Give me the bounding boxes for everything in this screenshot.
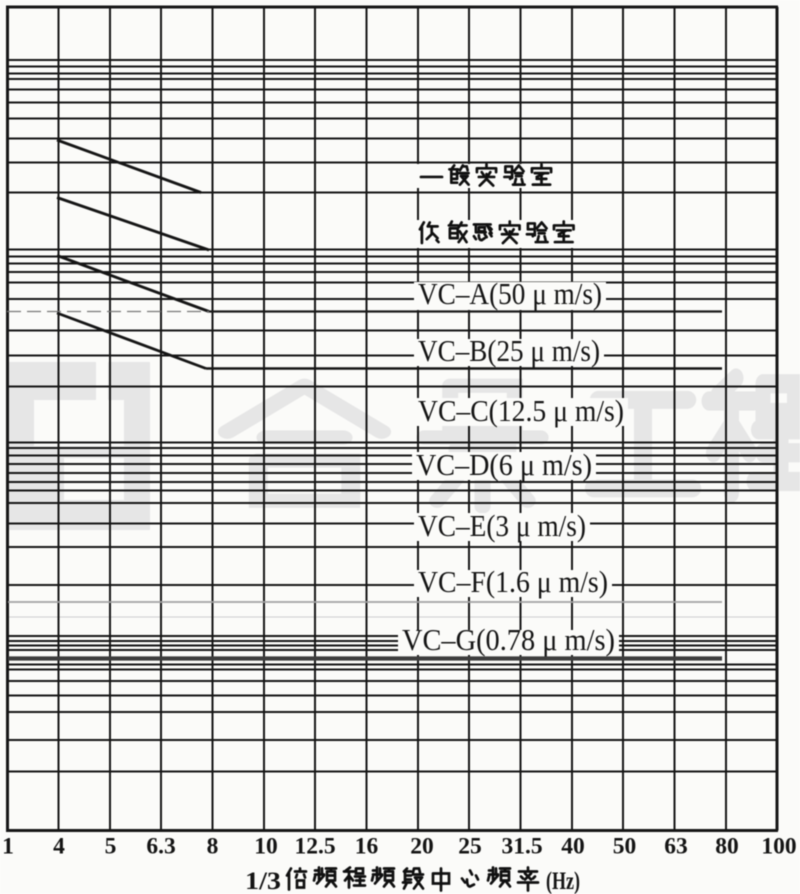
svg-text:12.5: 12.5 [294,834,335,860]
svg-text:VC–F(1.6 μ m/s): VC–F(1.6 μ m/s) [418,564,608,599]
svg-text:10: 10 [254,834,278,860]
svg-text:VC–G(0.78 μ m/s): VC–G(0.78 μ m/s) [402,622,615,657]
svg-text:4: 4 [53,834,65,860]
svg-text:VC–B(25 μ m/s): VC–B(25 μ m/s) [418,333,600,368]
svg-text:16: 16 [355,834,379,860]
svg-text:(Hz): (Hz) [546,868,580,894]
svg-text:1: 1 [2,834,14,860]
svg-text:20: 20 [410,834,434,860]
svg-text:1/3: 1/3 [245,868,281,894]
svg-text:50: 50 [613,834,637,860]
svg-text:31.5: 31.5 [501,834,542,860]
svg-text:VC–E(3 μ m/s): VC–E(3 μ m/s) [418,508,586,543]
svg-text:VC–A(50 μ m/s): VC–A(50 μ m/s) [418,276,602,311]
svg-text:63: 63 [664,834,688,860]
svg-text:VC–C(12.5 μ m/s): VC–C(12.5 μ m/s) [418,393,624,428]
svg-text:6.3: 6.3 [146,834,175,860]
svg-text:100: 100 [761,834,796,860]
svg-text:VC–D(6 μ m/s): VC–D(6 μ m/s) [416,447,592,482]
svg-text:40: 40 [561,834,585,860]
svg-text:80: 80 [715,834,739,860]
svg-text:25: 25 [458,834,482,860]
svg-text:5: 5 [105,834,117,860]
svg-text:8: 8 [207,834,219,860]
